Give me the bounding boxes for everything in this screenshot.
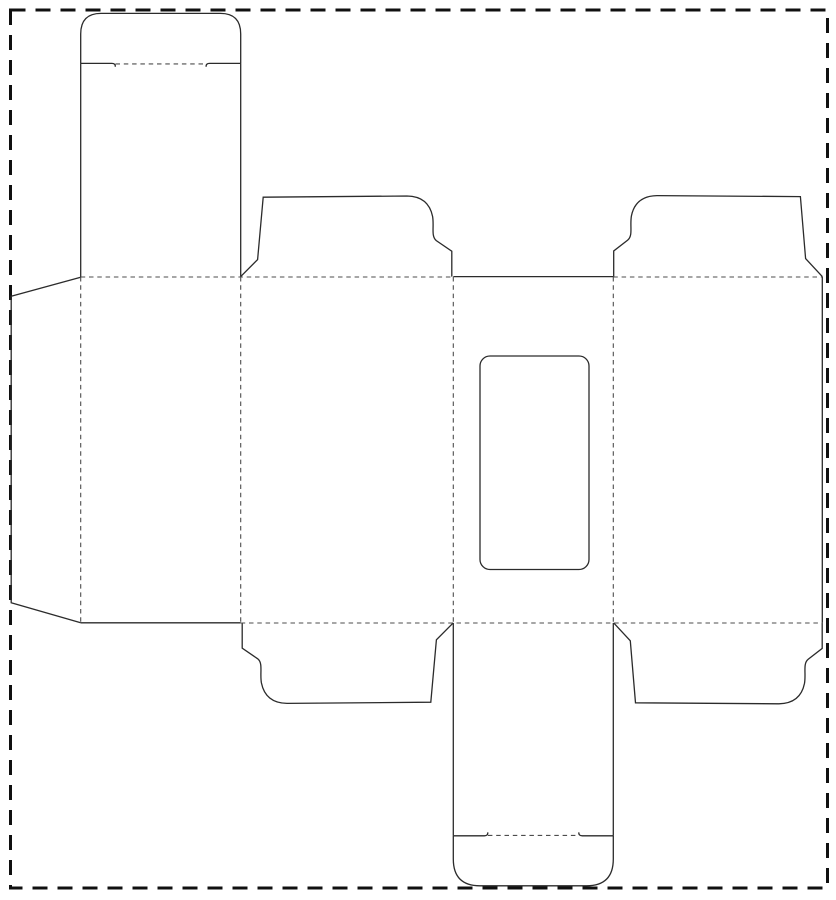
bottom-dust-flap-right	[614, 623, 823, 704]
bottom-tuck-lock-slit-left	[453, 832, 487, 835]
dieline-drawing	[0, 0, 836, 900]
top-dust-flap-left	[241, 196, 452, 277]
dieline-page	[0, 0, 836, 900]
top-tuck-lock-slit-left	[81, 63, 116, 66]
top-dust-flap-right	[614, 196, 823, 277]
bottom-tuck-lock-slit-right	[579, 832, 613, 835]
top-tuck-cap-outline	[81, 13, 241, 63]
window-cutout	[480, 356, 589, 570]
bottom-dust-flap-left	[242, 623, 453, 704]
glue-flap-outline	[11, 277, 81, 623]
page-cut-border	[11, 10, 828, 888]
bottom-tuck-cap-outline	[453, 836, 613, 886]
top-tuck-lock-slit-right	[206, 63, 241, 66]
